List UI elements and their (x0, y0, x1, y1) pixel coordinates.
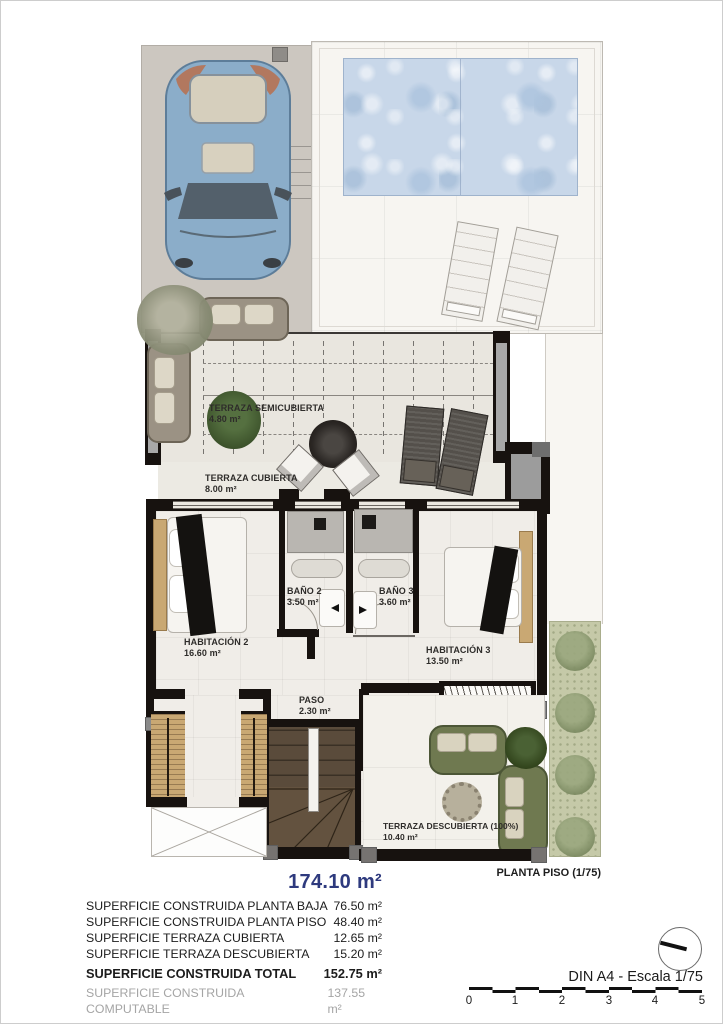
summary-row-label: SUPERFICIE CONSTRUIDA PLANTA PISO (86, 914, 326, 930)
room-label-terraza-semicubierta: TERRAZA SEMICUBIERTA 4.80 m² (209, 403, 324, 426)
wardrobe-left (151, 711, 185, 803)
stairs-top-wall (269, 719, 361, 727)
right-protrusion-pillar (532, 442, 550, 457)
scale-tick: 0 (459, 995, 479, 1007)
bath-shelf-line (353, 635, 415, 637)
scale-tick: 1 (505, 995, 525, 1007)
wardrobe-right (241, 711, 267, 803)
sofa-cushion (154, 392, 175, 424)
car-illustration (158, 55, 298, 285)
summary-row-computable: SUPERFICIE CONSTRUIDA COMPUTABLE 137.55 … (86, 985, 382, 1001)
scale-tick: 5 (692, 995, 712, 1007)
vanity-bath2 (291, 559, 343, 578)
scale-tick: 3 (599, 995, 619, 1007)
scale-tick: 4 (645, 995, 665, 1007)
bath-partition-wall (279, 511, 285, 633)
compass-needle (660, 941, 687, 951)
stairs-bottom-wall (263, 847, 363, 859)
room-label-habitacion2: HABITACIÓN 2 16.60 m² (184, 637, 249, 660)
pool-grid-line (460, 59, 461, 195)
garden-bush (555, 817, 595, 857)
sofa-cushion (154, 357, 175, 389)
bedroom3-window (427, 501, 519, 509)
summary-row-value: 15.20 m² (333, 946, 382, 962)
summary-row-label: SUPERFICIE TERRAZA DESCUBIERTA (86, 946, 309, 962)
pergola-dashed-edge (203, 363, 503, 364)
garden-bush (555, 693, 595, 733)
olive-tree (137, 285, 213, 355)
bath-partition-wall (413, 511, 419, 633)
sofa-cushion (468, 733, 497, 752)
summary-row-value: 76.50 m² (333, 898, 382, 914)
summary-row: SUPERFICIE TERRAZA CUBIERTA 12.65 m² (86, 930, 382, 946)
summary-row-value: 137.55 m² (327, 985, 382, 1001)
bedroom2-window (173, 501, 273, 509)
paso-divider-wall (307, 629, 315, 659)
plan-caption: PLANTA PISO (1/75) (441, 867, 601, 879)
room-label-terraza-descubierta: TERRAZA DESCUBIERTA (100%) 10.40 m² (383, 821, 518, 842)
bath3-window (359, 501, 405, 509)
wall-pillar (531, 847, 547, 863)
paper-scale-label: DIN A4 - Escala 1/75 (501, 969, 703, 985)
summary-row-value: 12.65 m² (333, 930, 382, 946)
floorplan-page: TERRAZA SEMICUBIERTA 4.80 m² TERRAZA CUB… (0, 0, 723, 1024)
summary-row: SUPERFICIE CONSTRUIDA PLANTA PISO 48.40 … (86, 914, 382, 930)
sofa-cushion (244, 304, 274, 325)
right-walkway (545, 334, 603, 624)
potted-plant (505, 727, 547, 769)
bed2-headboard (153, 519, 167, 631)
terrace-right-glazing (496, 343, 507, 451)
shower-head-bath2 (314, 518, 326, 530)
garden-bush (555, 755, 595, 795)
summary-row: SUPERFICIE TERRAZA DESCUBIERTA 15.20 m² (86, 946, 382, 962)
bedroom3-south-wall (361, 683, 441, 693)
summary-row-label: SUPERFICIE CONSTRUIDA COMPUTABLE (86, 985, 327, 1001)
sofa-cushion (505, 777, 524, 807)
bath2-window (295, 501, 341, 509)
wardrobe-bottom-gap (187, 797, 239, 807)
room-label-paso: PASO 2.30 m² (299, 695, 331, 718)
sofa-cushion (437, 733, 466, 752)
north-compass-icon (658, 927, 702, 971)
summary-row-value: 48.40 m² (333, 914, 382, 930)
room-label-habitacion3: HABITACIÓN 3 13.50 m² (426, 645, 491, 668)
room-label-bano3: BAÑO 3 3.60 m² (379, 586, 414, 609)
wardrobe-corridor-wall (151, 689, 185, 699)
summary-row: SUPERFICIE CONSTRUIDA PLANTA BAJA 76.50 … (86, 898, 382, 914)
void-cross-area (151, 807, 267, 857)
scale-bar-row (469, 990, 702, 993)
garden-bush (555, 631, 595, 671)
summary-row-label: SUPERFICIE CONSTRUIDA TOTAL (86, 965, 296, 982)
right-protrusion-glazing (511, 454, 541, 500)
summary-row-total: SUPERFICIE CONSTRUIDA TOTAL 152.75 m² (86, 965, 382, 982)
scale-bar (469, 987, 702, 993)
shower-head-bath3 (362, 515, 376, 529)
wall-pillar (361, 847, 377, 863)
bath-center-wall (346, 506, 353, 633)
toilet-arrow (331, 604, 339, 612)
summary-row-label: SUPERFICIE CONSTRUIDA PLANTA BAJA (86, 898, 328, 914)
terraza-bottom-wall (359, 849, 547, 861)
toilet-arrow (359, 606, 367, 614)
room-label-bano2: BAÑO 2 3.50 m² (287, 586, 322, 609)
summary-row-label: SUPERFICIE TERRAZA CUBIERTA (86, 930, 284, 946)
scale-tick: 2 (552, 995, 572, 1007)
right-exterior-wall (537, 511, 547, 695)
stairs-stringer (308, 728, 319, 812)
round-side-table (442, 782, 482, 822)
summary-table: SUPERFICIE CONSTRUIDA PLANTA BAJA 76.50 … (86, 898, 382, 1001)
summary-row-value: 152.75 m² (324, 965, 382, 982)
total-area-highlight: 174.10 m² (86, 871, 382, 894)
vanity-bath3 (358, 559, 410, 578)
room-label-terraza-cubierta: TERRAZA CUBIERTA 8.00 m² (205, 473, 298, 496)
sofa-cushion (211, 304, 241, 325)
